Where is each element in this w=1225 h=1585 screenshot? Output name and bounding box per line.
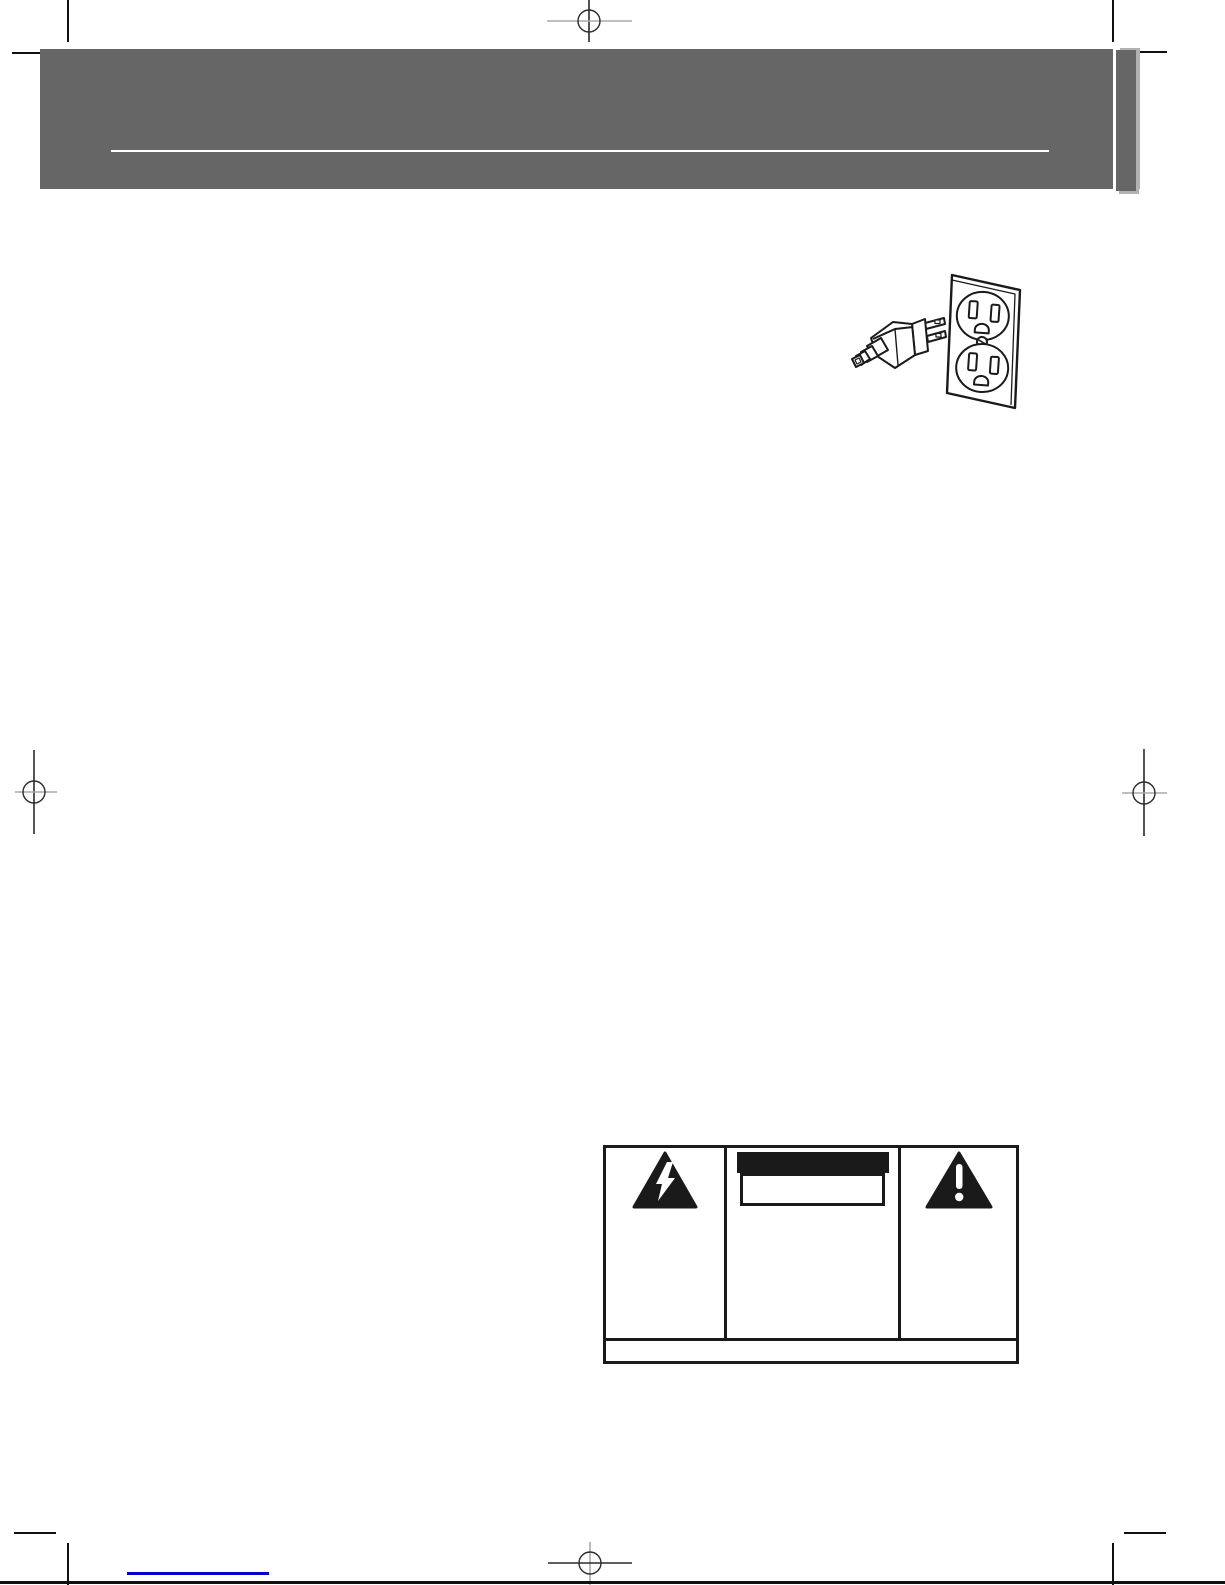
- caution-label-left-cell: [606, 1148, 727, 1338]
- page-bottom-rule: [0, 1581, 1225, 1584]
- caution-label-bottom-strip: [606, 1338, 1016, 1361]
- header-banner: [40, 49, 1113, 189]
- high-voltage-lightning-triangle-icon: [632, 1151, 698, 1209]
- crop-mark-bottom-left-vertical: [67, 1543, 69, 1585]
- manual-page: [0, 0, 1225, 1585]
- footer-link-underline[interactable]: [127, 1572, 269, 1575]
- header-banner-rule: [111, 150, 1049, 152]
- crop-mark-bottom-right-horizontal: [1124, 1532, 1166, 1534]
- crop-mark-top-right-vertical: [1112, 0, 1114, 42]
- registration-mark-top-center: [544, 0, 636, 46]
- header-side-tab: [1116, 50, 1136, 191]
- caution-label-diagram: [603, 1145, 1019, 1364]
- power-plug-icon: [852, 318, 946, 368]
- caution-header-bar: [737, 1152, 889, 1173]
- caution-text-box: [740, 1173, 885, 1206]
- registration-mark-left-middle: [10, 746, 66, 838]
- caution-label-right-cell: [898, 1148, 1016, 1338]
- crop-mark-bottom-right-vertical: [1112, 1543, 1114, 1585]
- registration-mark-right-middle: [1118, 744, 1174, 840]
- duplex-wall-outlet-icon: [947, 275, 1020, 408]
- crop-mark-bottom-left-horizontal: [14, 1532, 56, 1534]
- alert-exclamation-triangle-icon: [925, 1151, 993, 1209]
- crop-mark-top-left-vertical: [67, 0, 69, 42]
- caution-header-assembly: [737, 1152, 889, 1206]
- registration-mark-bottom-center: [544, 1539, 636, 1585]
- power-plug-and-outlet-illustration: [843, 262, 1023, 417]
- caution-label-center-cell: [727, 1148, 898, 1338]
